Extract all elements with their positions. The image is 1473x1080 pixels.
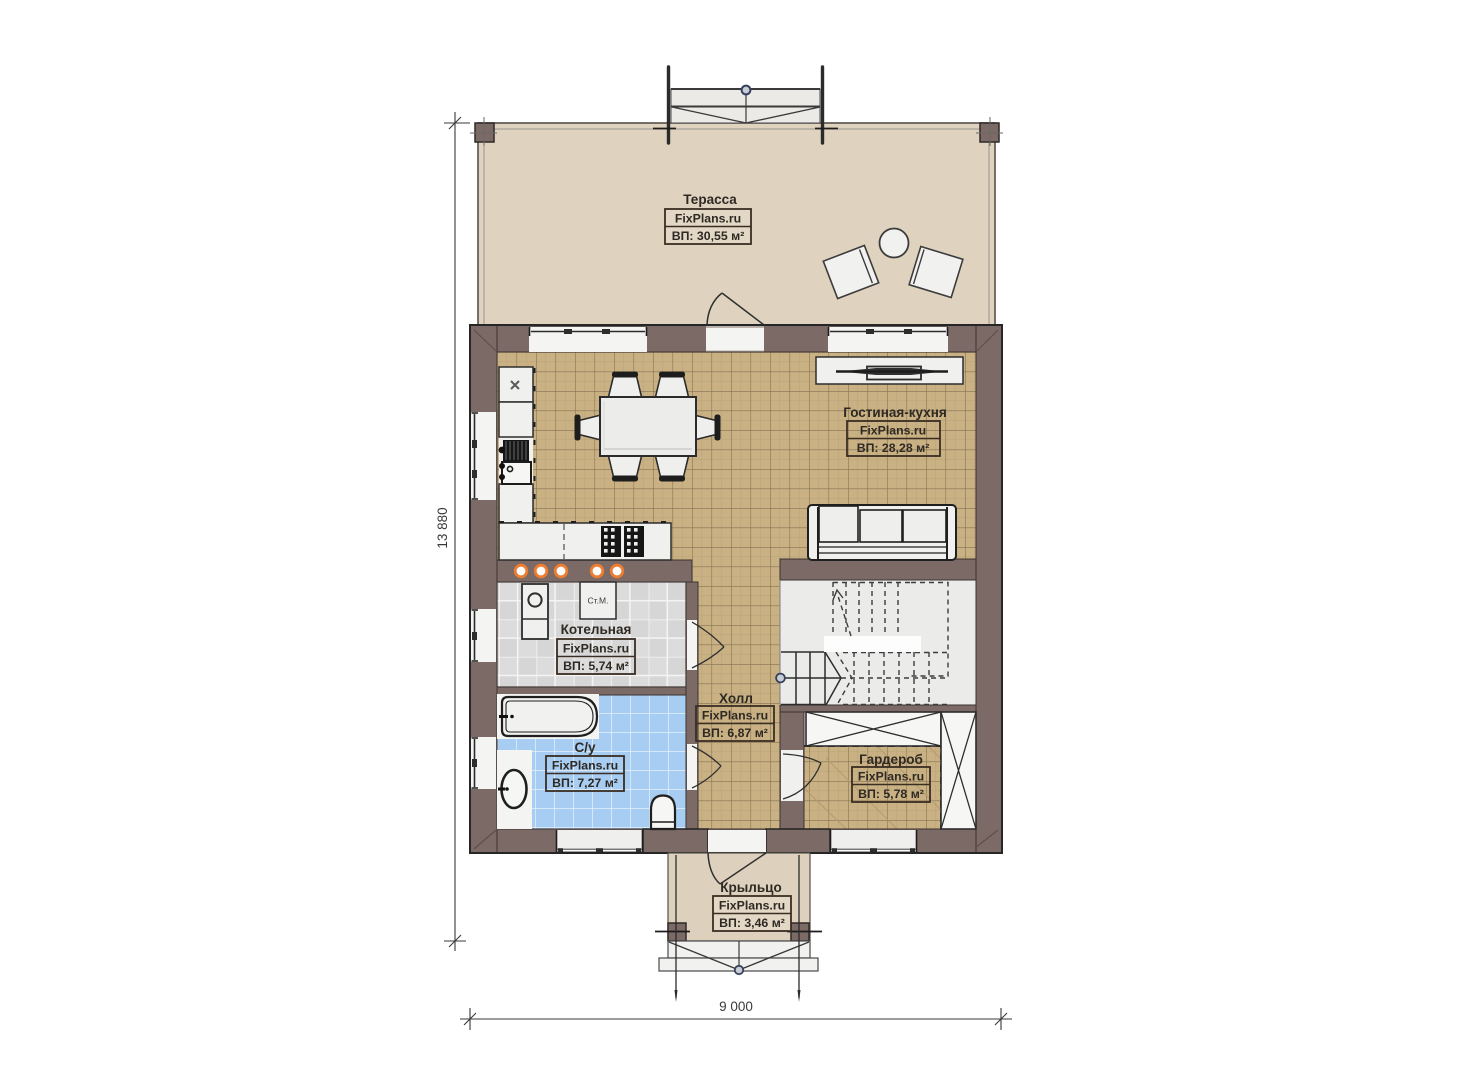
svg-text:ВП: 5,78 м²: ВП: 5,78 м² xyxy=(858,787,924,801)
svg-text:ВП: 7,27 м²: ВП: 7,27 м² xyxy=(552,776,618,790)
svg-text:ВП: 6,87 м²: ВП: 6,87 м² xyxy=(702,726,768,740)
svg-text:ВП: 28,28 м²: ВП: 28,28 м² xyxy=(857,441,930,455)
svg-text:ВП: 3,46 м²: ВП: 3,46 м² xyxy=(719,916,785,930)
svg-text:Котельная: Котельная xyxy=(561,622,632,637)
svg-text:FixPlans.ru: FixPlans.ru xyxy=(860,424,926,438)
svg-text:ВП: 30,55 м²: ВП: 30,55 м² xyxy=(672,229,745,243)
svg-text:FixPlans.ru: FixPlans.ru xyxy=(675,212,741,226)
svg-text:Терасса: Терасса xyxy=(683,192,737,207)
svg-text:Ст.М.: Ст.М. xyxy=(588,596,609,606)
svg-text:FixPlans.ru: FixPlans.ru xyxy=(552,759,618,773)
svg-text:FixPlans.ru: FixPlans.ru xyxy=(563,642,629,656)
svg-text:13 880: 13 880 xyxy=(435,507,450,548)
svg-text:FixPlans.ru: FixPlans.ru xyxy=(858,770,924,784)
svg-text:Холл: Холл xyxy=(719,691,753,706)
svg-text:С/у: С/у xyxy=(574,740,596,755)
svg-text:9 000: 9 000 xyxy=(719,999,753,1014)
svg-text:ВП: 5,74 м²: ВП: 5,74 м² xyxy=(563,659,629,673)
svg-text:FixPlans.ru: FixPlans.ru xyxy=(702,709,768,723)
svg-text:Гостиная-кухня: Гостиная-кухня xyxy=(843,405,946,420)
svg-text:Крыльцо: Крыльцо xyxy=(720,880,781,895)
svg-text:FixPlans.ru: FixPlans.ru xyxy=(719,899,785,913)
svg-text:Гардероб: Гардероб xyxy=(859,752,923,767)
